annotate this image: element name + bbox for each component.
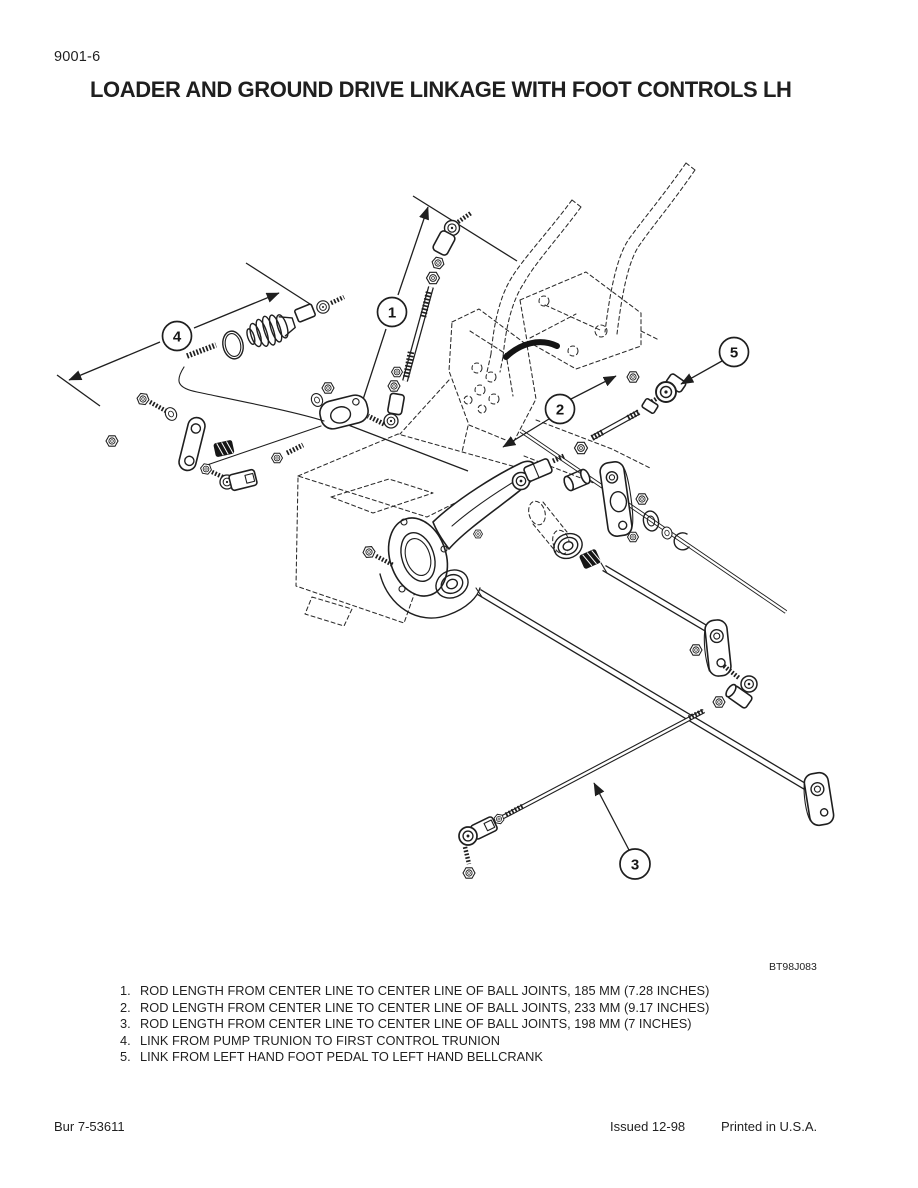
knurled-spring bbox=[579, 549, 601, 569]
knurled-spring bbox=[214, 440, 234, 456]
control-levers-phantom bbox=[487, 163, 695, 372]
mount-plate bbox=[599, 460, 636, 537]
legend-item-text: LINK FROM LEFT HAND FOOT PEDAL TO LEFT H… bbox=[140, 1049, 543, 1066]
callout-1-number: 1 bbox=[388, 305, 396, 322]
boot bbox=[243, 308, 298, 351]
o-ring bbox=[220, 329, 245, 361]
legend-item: 1. ROD LENGTH FROM CENTER LINE TO CENTER… bbox=[120, 983, 709, 1000]
figure-code: BT98J083 bbox=[769, 961, 817, 973]
legend-item-number: 1. bbox=[120, 983, 140, 1000]
callout-2: 2 bbox=[546, 395, 575, 424]
dimension-rod-1 bbox=[343, 196, 517, 471]
rotation-arrow bbox=[506, 342, 557, 357]
legend-item-text: ROD LENGTH FROM CENTER LINE TO CENTER LI… bbox=[140, 1000, 709, 1017]
legend-item-number: 4. bbox=[120, 1033, 140, 1050]
footer-printed-in: Printed in U.S.A. bbox=[721, 1119, 817, 1134]
callout-1: 1 bbox=[378, 298, 407, 327]
footer-issued-date: Issued 12-98 bbox=[610, 1119, 685, 1134]
legend-item: 3. ROD LENGTH FROM CENTER LINE TO CENTER… bbox=[120, 1016, 709, 1033]
pivot-plate-assembly bbox=[363, 461, 536, 618]
clevis-link bbox=[177, 416, 207, 473]
rod-a-assembly bbox=[550, 529, 757, 709]
manual-page: 9001-6 LOADER AND GROUND DRIVE LINKAGE W… bbox=[0, 0, 918, 1188]
legend-item-number: 5. bbox=[120, 1049, 140, 1066]
link-4-assembly bbox=[106, 297, 344, 491]
legend-item: 2. ROD LENGTH FROM CENTER LINE TO CENTER… bbox=[120, 1000, 709, 1017]
legend-item: 5. LINK FROM LEFT HAND FOOT PEDAL TO LEF… bbox=[120, 1049, 709, 1066]
bushing bbox=[562, 468, 591, 492]
legend-item-text: LINK FROM PUMP TRUNION TO FIRST CONTROL … bbox=[140, 1033, 500, 1050]
rod-3-assembly bbox=[459, 711, 704, 878]
legend-item-number: 2. bbox=[120, 1000, 140, 1017]
frame-phantom bbox=[296, 309, 650, 626]
callout-4-number: 4 bbox=[173, 329, 182, 346]
callout-4: 4 bbox=[163, 322, 192, 351]
callout-leaders bbox=[503, 361, 722, 850]
legend-item-number: 3. bbox=[120, 1016, 140, 1033]
legend-item-text: ROD LENGTH FROM CENTER LINE TO CENTER LI… bbox=[140, 983, 709, 1000]
legend-item-text: ROD LENGTH FROM CENTER LINE TO CENTER LI… bbox=[140, 1016, 692, 1033]
legend-item: 4. LINK FROM PUMP TRUNION TO FIRST CONTR… bbox=[120, 1033, 709, 1050]
callout-3-number: 3 bbox=[631, 857, 639, 874]
bracket bbox=[801, 771, 835, 826]
legend: 1. ROD LENGTH FROM CENTER LINE TO CENTER… bbox=[120, 983, 709, 1066]
callout-2-number: 2 bbox=[556, 402, 564, 419]
callout-5-number: 5 bbox=[730, 345, 738, 362]
rod-b-assembly bbox=[476, 588, 835, 827]
callout-3: 3 bbox=[620, 849, 650, 879]
footer-publication-number: Bur 7-53611 bbox=[54, 1119, 125, 1134]
callout-5: 5 bbox=[720, 338, 749, 367]
